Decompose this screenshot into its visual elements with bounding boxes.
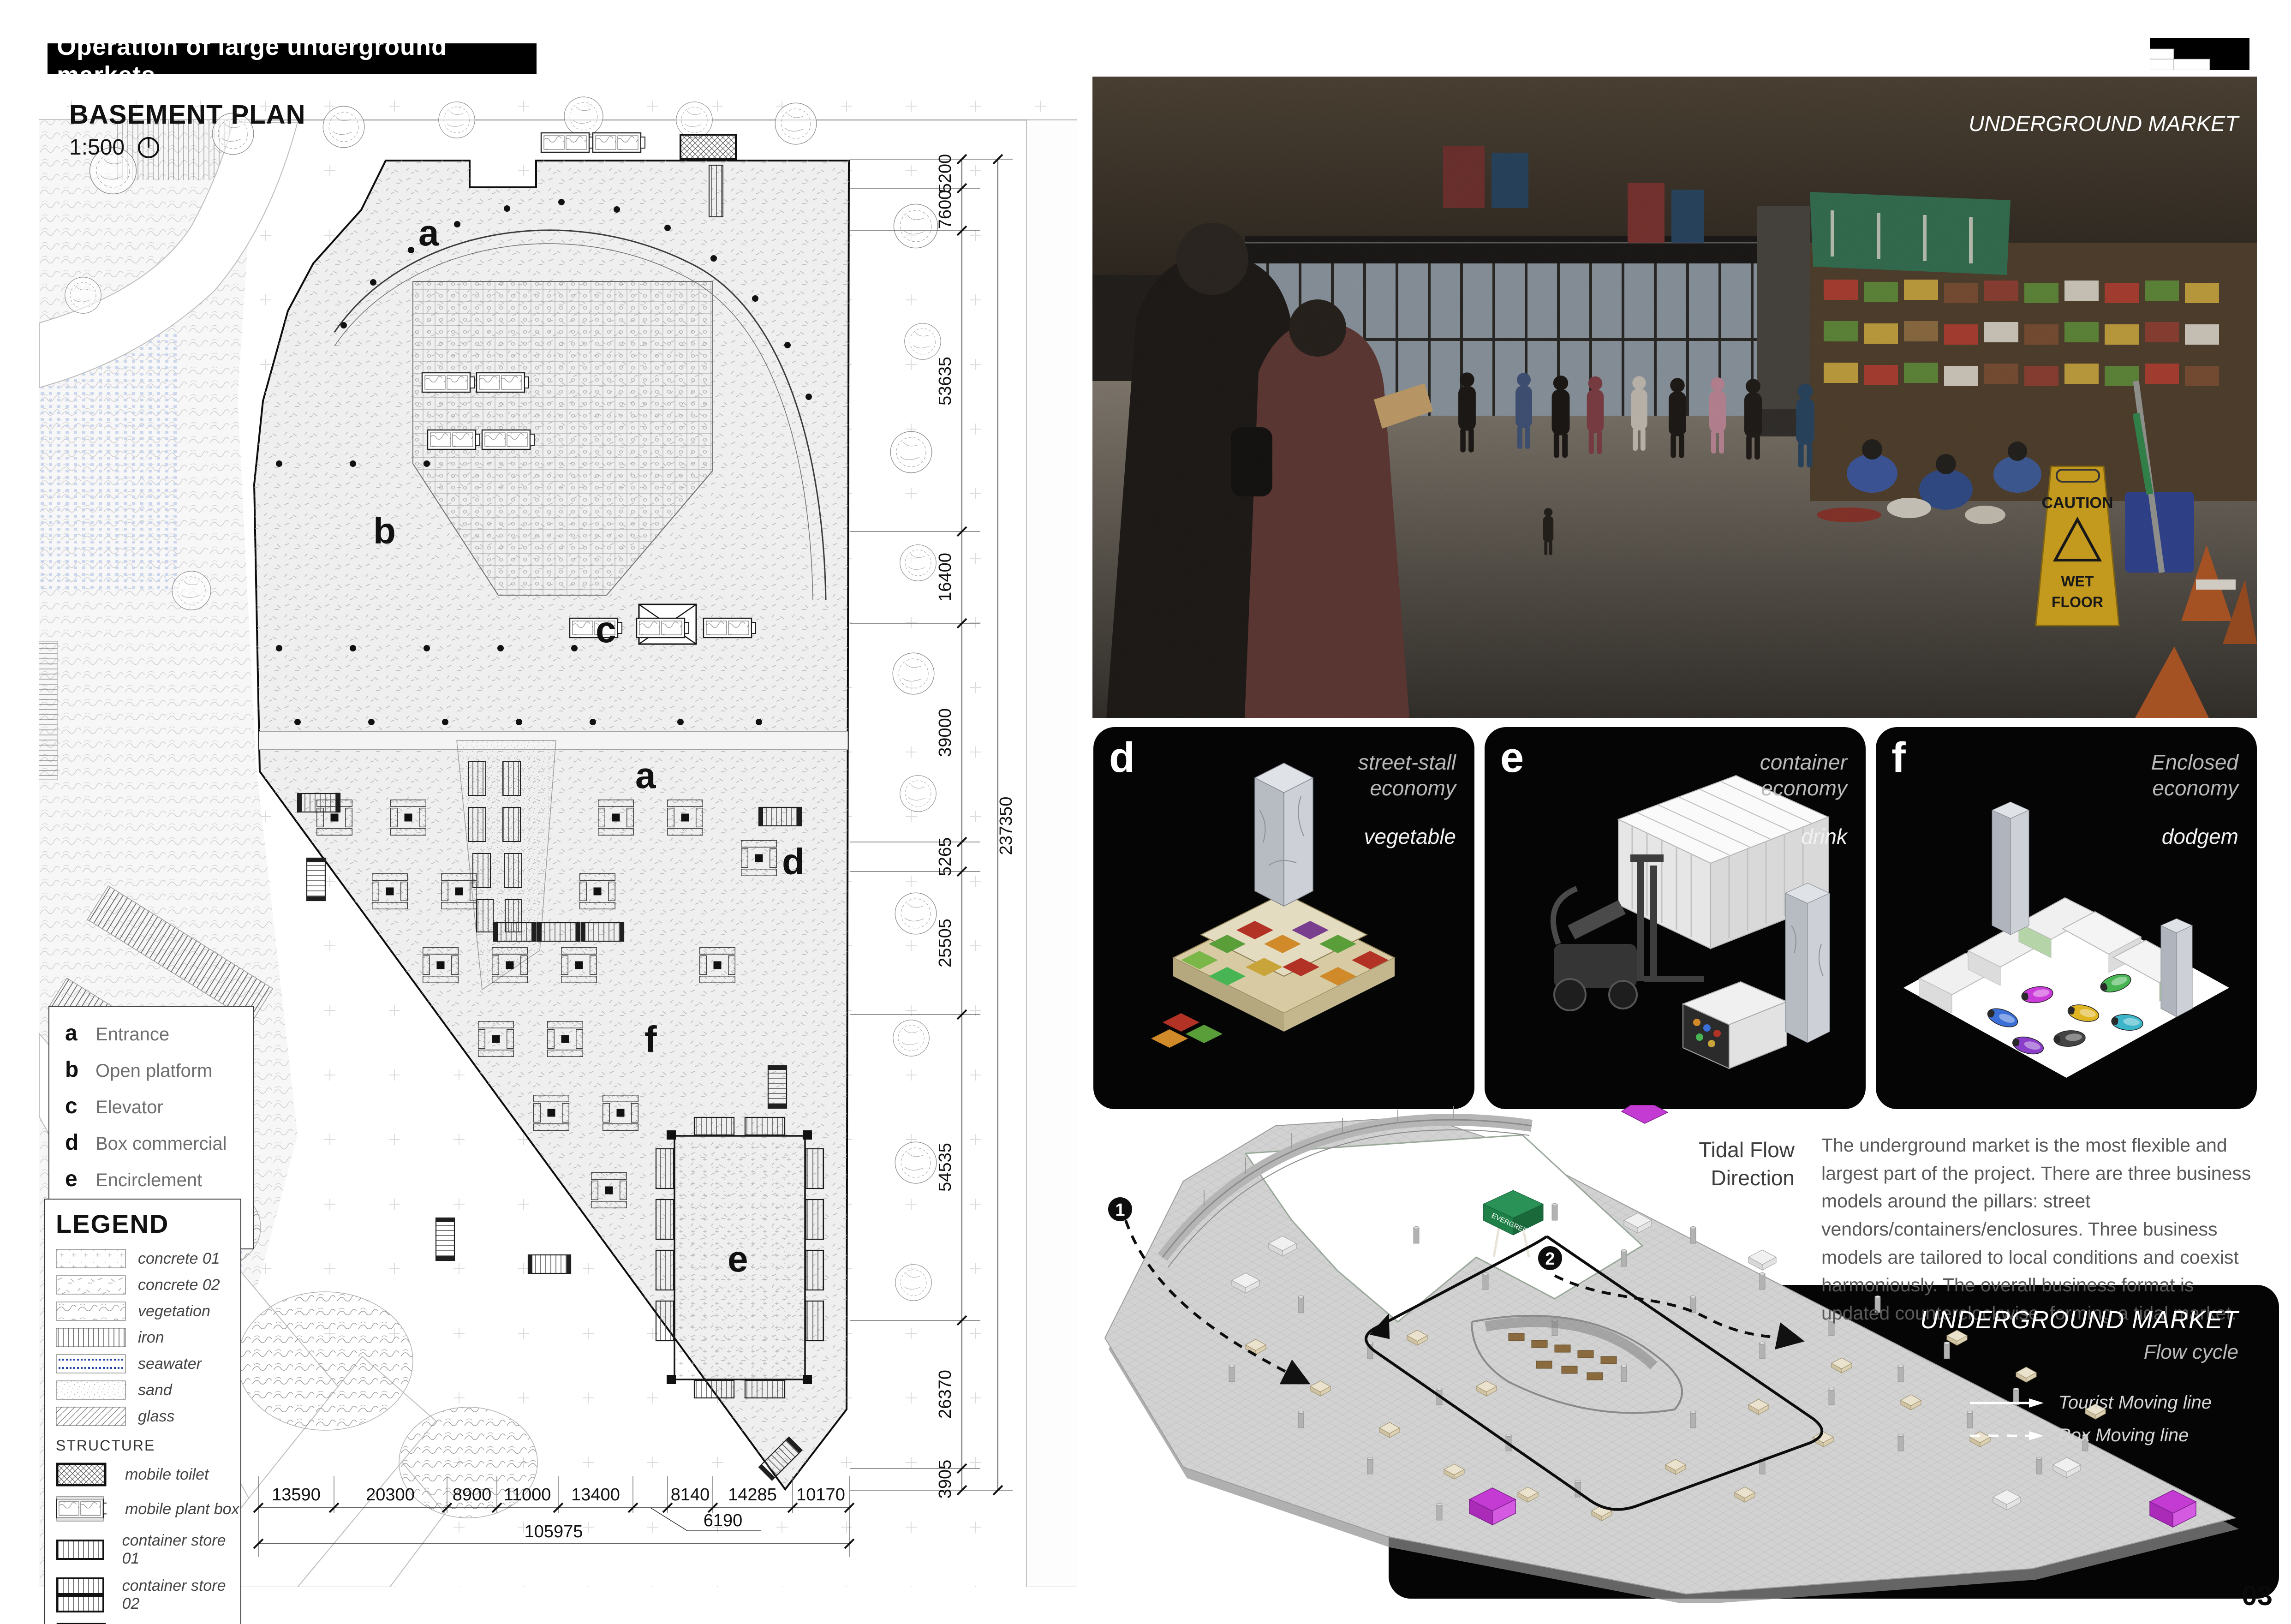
flow-legend-tourist: Tourist Moving line <box>1864 1392 2238 1413</box>
plan-heading: BASEMENT PLAN 1:500 <box>69 99 305 160</box>
panel-enclosed: f Enclosed economy dodgem <box>1876 727 2257 1109</box>
legend-structure-title: STRUCTURE <box>56 1437 240 1454</box>
structure-mobile-toilet-icon <box>56 1463 107 1487</box>
legend-material-0: concrete 01 <box>138 1250 220 1268</box>
structure-elevator-system-icon <box>56 1622 107 1624</box>
dim-bottom-3: 11000 <box>504 1485 551 1505</box>
legend-structure-3: container store 02 <box>122 1577 240 1613</box>
flow-cycle-subtitle: Flow cycle <box>1864 1341 2238 1364</box>
plan-title: BASEMENT PLAN <box>69 99 305 130</box>
swatch-iron-icon <box>56 1328 126 1347</box>
dashed-arrow-icon <box>1969 1430 2047 1442</box>
plan-letter-e: e <box>728 1238 748 1279</box>
swatch-concrete01-icon <box>56 1249 126 1268</box>
legend: LEGEND concrete 01 concrete 02 vegetatio… <box>44 1199 241 1624</box>
key-label-a: Entrance <box>95 1024 169 1045</box>
dim-right-1: 7600 <box>936 190 955 229</box>
svg-text:1: 1 <box>1115 1200 1125 1220</box>
panel-e-letter: e <box>1500 734 1524 782</box>
legend-material-5: sand <box>138 1381 172 1399</box>
dim-bottom-7: 10170 <box>796 1485 845 1505</box>
flow-legend-box: Box Moving line <box>1864 1425 2238 1446</box>
panel-d-item: vegetable <box>1299 824 1456 849</box>
dim-right-5: 5265 <box>936 837 955 877</box>
panel-f-letter: f <box>1891 734 1906 782</box>
legend-structure-0: mobile toilet <box>125 1466 209 1484</box>
plan-letter-b: b <box>373 510 396 551</box>
market-photo: CAUTION WET FLOOR UNDERGROUND MARKET <box>1092 77 2257 718</box>
dim-right-4: 39000 <box>936 708 955 757</box>
north-indicator-icon <box>137 136 161 160</box>
plan-letter-a1: a <box>418 212 439 253</box>
svg-text:2: 2 <box>1545 1249 1555 1269</box>
dim-right-3: 16400 <box>936 553 955 602</box>
page-number: 03 <box>2242 1580 2273 1612</box>
panel-d-category: street-stall economy <box>1299 749 1456 801</box>
swatch-sand-icon <box>56 1380 126 1400</box>
panel-e-item: drink <box>1690 824 1847 849</box>
key-letter-c: c <box>65 1093 95 1119</box>
legend-structure-1: mobile plant box <box>125 1500 239 1518</box>
swatch-concrete02-icon <box>56 1275 126 1295</box>
legend-title: LEGEND <box>56 1209 240 1239</box>
swatch-seawater-icon <box>56 1354 126 1373</box>
key-letter-e: e <box>65 1166 95 1192</box>
legend-material-1: concrete 02 <box>138 1276 220 1294</box>
dim-right-7: 54535 <box>936 1143 955 1192</box>
panel-f-item: dodgem <box>2082 824 2238 849</box>
dim-bottom-2: 8900 <box>453 1485 492 1505</box>
structure-mobile-plant-box-icon <box>56 1496 107 1522</box>
flow-cycle-text: UNDERGROUND MARKET Flow cycle Tourist Mo… <box>1864 1306 2238 1446</box>
dim-right-0: 5200 <box>936 154 955 193</box>
marble-pillar-e <box>1785 883 1830 1043</box>
dim-right-8: 26370 <box>936 1370 955 1419</box>
dim-bottom-1: 20300 <box>366 1485 415 1505</box>
panel-e-category: container economy <box>1690 749 1847 801</box>
plan-letter-a2: a <box>635 755 656 796</box>
key-label-e: Encirclement <box>95 1170 202 1191</box>
key-letter-d: d <box>65 1130 95 1155</box>
swatch-glass-icon <box>56 1407 126 1426</box>
plan-scale: 1:500 <box>69 135 125 160</box>
panel-d-letter: d <box>1109 734 1135 782</box>
structure-container-store02-icon <box>56 1577 104 1613</box>
legend-structure-2: container store 01 <box>122 1532 240 1568</box>
flow-marker-2: 2 <box>1538 1246 1562 1270</box>
key-letter-a: a <box>65 1021 95 1046</box>
photo-caption: UNDERGROUND MARKET <box>1969 111 2240 136</box>
solid-arrow-icon <box>1969 1397 2047 1409</box>
key-letter-b: b <box>65 1057 95 1082</box>
legend-material-4: seawater <box>138 1355 202 1373</box>
dim-bottom-5: 8140 <box>671 1485 710 1505</box>
legend-material-6: glass <box>138 1408 174 1426</box>
key-label-b: Open platform <box>95 1061 212 1081</box>
dim-right-2: 53635 <box>936 357 955 406</box>
dim-bottom-6: 14285 <box>728 1485 777 1505</box>
structure-container-store01-icon <box>56 1538 104 1561</box>
panel-street-stall: d street-stall economy vegetable <box>1093 727 1474 1109</box>
key-label-d: Box commercial <box>95 1134 227 1154</box>
swatch-vegetation-icon <box>56 1302 126 1321</box>
flow-cycle-title: UNDERGROUND MARKET <box>1864 1306 2238 1334</box>
dim-bottom-total: 105975 <box>525 1522 583 1541</box>
dim-right-6: 25505 <box>936 919 955 967</box>
board-title-bar: Operation of large underground markets <box>48 43 537 78</box>
key-label-c: Elevator <box>95 1097 163 1118</box>
flow-marker-1: 1 <box>1108 1197 1132 1221</box>
plan-letter-f: f <box>644 1019 657 1060</box>
dim-bottom-4: 13400 <box>571 1485 620 1505</box>
panel-f-category: Enclosed economy <box>2082 749 2238 801</box>
dim-bottom-callout: 6190 <box>704 1511 743 1530</box>
legend-material-3: iron <box>138 1329 164 1347</box>
tidal-flow-paragraph: The underground market is the most flexi… <box>1821 1131 2257 1327</box>
plan-letter-c: c <box>596 609 616 650</box>
tidal-flow-label: Tidal Flow Direction <box>1670 1136 1795 1192</box>
studio-logo <box>2150 38 2249 70</box>
dim-right-total: 237350 <box>996 797 1016 855</box>
plan-letter-d: d <box>782 841 805 882</box>
panel-container: e container economy drink <box>1485 727 1866 1109</box>
dim-bottom-0: 13590 <box>272 1485 321 1505</box>
presentation-board: Operation of large underground markets <box>0 0 2291 1624</box>
legend-material-2: vegetation <box>138 1302 210 1320</box>
dim-right-9: 3905 <box>936 1460 955 1499</box>
